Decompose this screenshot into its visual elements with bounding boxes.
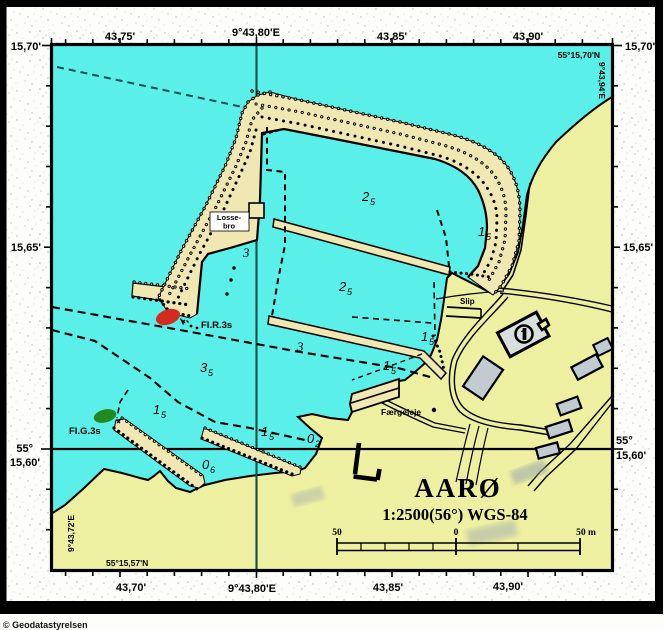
svg-text:50 m: 50 m: [576, 528, 596, 538]
svg-text:3: 3: [200, 360, 208, 375]
svg-text:0: 0: [202, 457, 210, 472]
svg-text:15,65': 15,65': [11, 242, 42, 254]
svg-text:Færgeleje: Færgeleje: [381, 407, 421, 417]
svg-text:0: 0: [454, 528, 459, 538]
svg-text:15,60': 15,60': [10, 457, 41, 469]
svg-text:50: 50: [332, 528, 342, 538]
svg-text:43,70': 43,70': [116, 582, 147, 594]
svg-text:3: 3: [296, 339, 304, 354]
svg-text:55°15,57'N: 55°15,57'N: [106, 558, 148, 568]
svg-text:9°43,80'E: 9°43,80'E: [228, 583, 276, 595]
svg-text:6: 6: [210, 465, 215, 475]
svg-text:1: 1: [153, 402, 160, 417]
svg-text:AARØ: AARØ: [414, 473, 502, 503]
svg-text:43,90': 43,90': [493, 581, 524, 593]
svg-text:Fl.G.3s: Fl.G.3s: [69, 426, 101, 437]
svg-text:© Geodatastyrelsen: © Geodatastyrelsen: [3, 620, 88, 630]
svg-text:15,70': 15,70': [625, 41, 656, 53]
svg-text:2: 2: [338, 279, 347, 294]
svg-text:3: 3: [242, 245, 250, 260]
svg-text:2: 2: [314, 439, 320, 449]
svg-text:43,90': 43,90': [513, 31, 544, 43]
svg-text:Slip: Slip: [460, 297, 475, 306]
svg-text:9°43,80'E: 9°43,80'E: [232, 27, 280, 39]
svg-text:15,70': 15,70': [11, 41, 42, 53]
svg-text:0: 0: [307, 431, 315, 446]
svg-text:1:2500(56°) WGS-84: 1:2500(56°) WGS-84: [382, 505, 527, 524]
svg-text:43,85': 43,85': [373, 582, 404, 594]
svg-text:55°15,70'N: 55°15,70'N: [558, 50, 600, 60]
svg-text:9°43,72'E: 9°43,72'E: [66, 515, 76, 552]
svg-text:15,60': 15,60': [616, 450, 647, 462]
svg-text:1: 1: [383, 358, 390, 373]
svg-text:55°: 55°: [616, 435, 633, 447]
svg-text:9°43,94'E: 9°43,94'E: [597, 62, 607, 99]
svg-text:43,75': 43,75': [105, 31, 136, 43]
svg-text:55°: 55°: [16, 443, 33, 455]
svg-text:Fl.R.3s: Fl.R.3s: [201, 320, 232, 331]
svg-text:1: 1: [421, 329, 428, 344]
svg-text:2: 2: [361, 189, 370, 204]
svg-text:15,65': 15,65': [623, 242, 654, 254]
svg-text:1: 1: [261, 424, 268, 439]
svg-text:bro: bro: [223, 222, 236, 231]
svg-text:43,85': 43,85': [377, 31, 408, 43]
svg-text:1: 1: [478, 224, 485, 239]
